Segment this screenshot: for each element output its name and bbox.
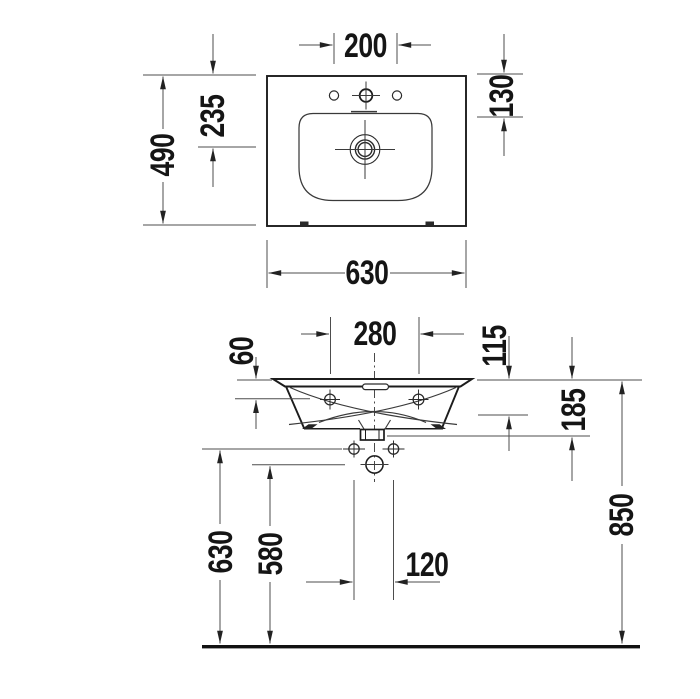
fixing-hole-right xyxy=(383,441,405,458)
dimension-lines-front xyxy=(202,317,642,644)
bowl-underside-curves xyxy=(289,388,457,430)
dim-label-115: 115 xyxy=(476,325,514,367)
fixing-hole-left xyxy=(343,441,365,458)
overflow-slot-front xyxy=(363,384,389,390)
dim-label-235: 235 xyxy=(194,94,232,137)
dim-label-630-height: 630 xyxy=(202,530,240,573)
dim-label-60: 60 xyxy=(223,337,261,366)
dim-label-580: 580 xyxy=(252,532,290,575)
front-view: 280 60 115 185 850 630 580 120 xyxy=(202,315,642,649)
waste-outlet xyxy=(361,456,389,473)
dim-label-850: 850 xyxy=(603,493,641,536)
dim-label-280: 280 xyxy=(353,315,396,353)
technical-drawing-sheet: 200 130 235 490 630 xyxy=(0,0,700,699)
top-view: 200 130 235 490 630 xyxy=(143,27,523,292)
mounting-hole-left xyxy=(320,390,340,410)
dim-label-200: 200 xyxy=(344,27,387,65)
dim-label-130: 130 xyxy=(483,74,521,117)
floor-line xyxy=(202,645,640,648)
dim-label-630-width: 630 xyxy=(345,254,388,292)
drawing-canvas: 200 130 235 490 630 xyxy=(0,0,700,699)
drain-sleeve xyxy=(361,430,385,441)
dim-label-185: 185 xyxy=(555,388,593,431)
dim-label-490: 490 xyxy=(144,133,182,176)
dim-label-120: 120 xyxy=(405,546,448,584)
mounting-hole-right xyxy=(409,390,429,410)
